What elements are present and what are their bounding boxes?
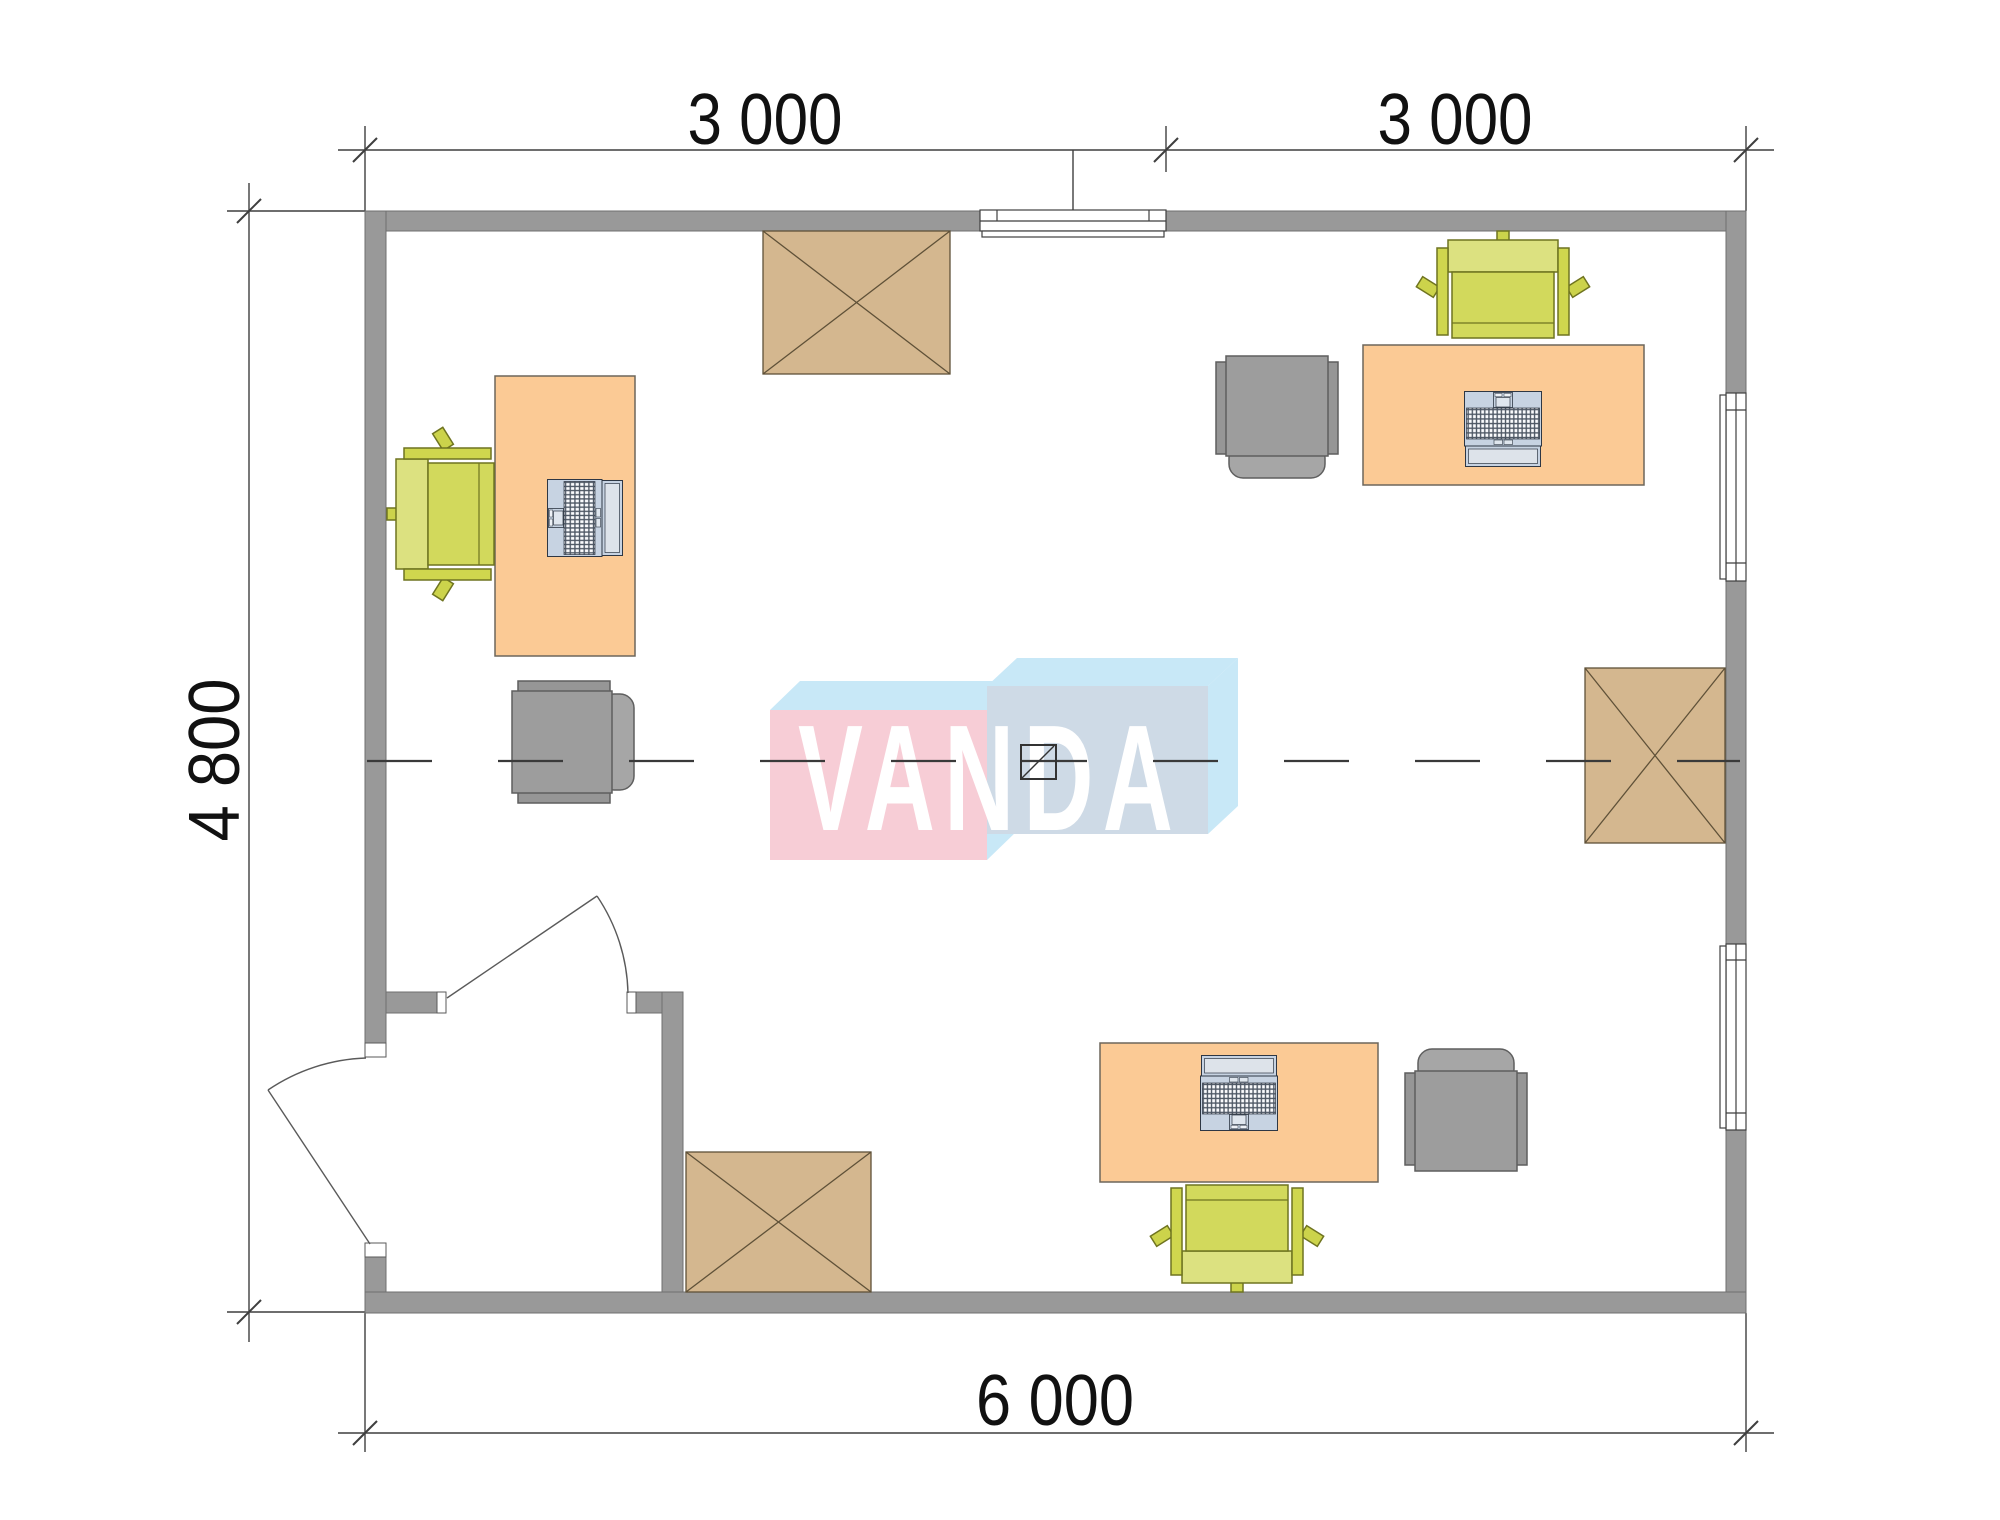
svg-text:3 000: 3 000 xyxy=(688,80,843,160)
svg-text:6 000: 6 000 xyxy=(976,1361,1134,1441)
svg-text:3 000: 3 000 xyxy=(1378,80,1533,160)
svg-text:4 800: 4 800 xyxy=(175,679,255,842)
svg-text:VANDA: VANDA xyxy=(798,693,1182,862)
